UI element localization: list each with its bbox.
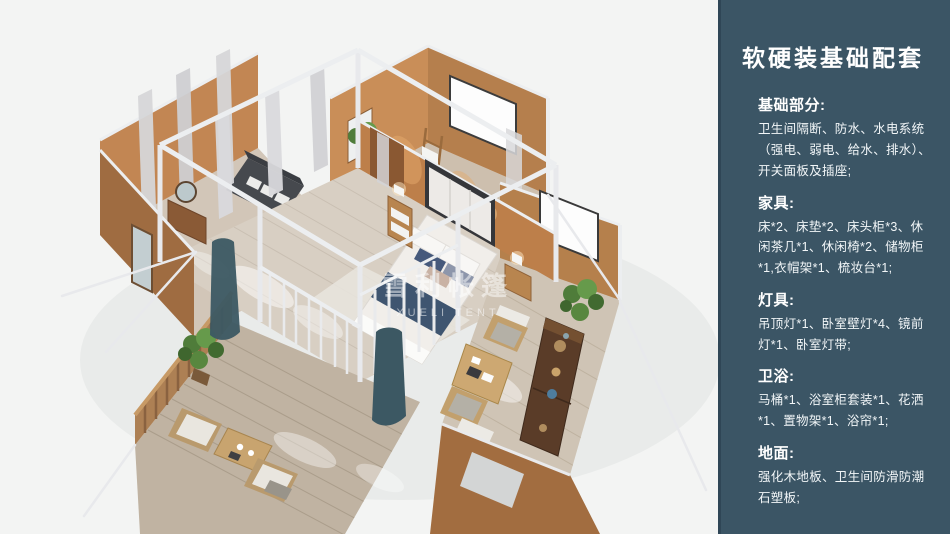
round-mirror <box>176 182 196 202</box>
section-body: 床*2、床垫*2、床头柜*3、休闲茶几*1、休闲椅*2、储物柜*1,衣帽架*1、… <box>758 217 936 279</box>
section-heading: 家具: <box>758 195 936 213</box>
section-heading: 基础部分: <box>758 97 936 115</box>
spec-section-furniture: 家具: 床*2、床垫*2、床头柜*3、休闲茶几*1、休闲椅*2、储物柜*1,衣帽… <box>758 195 936 279</box>
spec-section-lighting: 灯具: 吊顶灯*1、卧室壁灯*4、镜前灯*1、卧室灯带; <box>758 292 936 356</box>
floorplan-3d-view: 雪利帐篷 XUELI TENT <box>0 0 718 534</box>
spec-section-flooring: 地面: 强化木地板、卫生间防滑防潮石塑板; <box>758 445 936 509</box>
slide-canvas: 雪利帐篷 XUELI TENT 软硬装基础配套 基础部分: 卫生间隔断、防水、水… <box>0 0 950 534</box>
spec-section-basics: 基础部分: 卫生间隔断、防水、水电系统（强电、弱电、给水、排水）、开关面板及插座… <box>758 97 936 181</box>
watermark-cn: 雪利帐篷 <box>382 271 514 301</box>
panel-title: 软硬装基础配套 <box>742 46 942 71</box>
leaning-mirror <box>132 225 152 292</box>
section-heading: 地面: <box>758 445 936 463</box>
spec-section-bathroom: 卫浴: 马桶*1、浴室柜套装*1、花洒*1、置物架*1、浴帘*1; <box>758 368 936 432</box>
watermark: 雪利帐篷 XUELI TENT <box>382 271 514 319</box>
spec-sections: 基础部分: 卫生间隔断、防水、水电系统（强电、弱电、给水、排水）、开关面板及插座… <box>758 97 936 508</box>
section-body: 马桶*1、浴室柜套装*1、花洒*1、置物架*1、浴帘*1; <box>758 390 936 432</box>
teal-curtain <box>372 328 406 426</box>
section-body: 卫生间隔断、防水、水电系统（强电、弱电、给水、排水）、开关面板及插座; <box>758 119 936 181</box>
floorplan-render: 雪利帐篷 XUELI TENT <box>0 0 718 534</box>
section-body: 强化木地板、卫生间防滑防潮石塑板; <box>758 467 936 509</box>
spec-panel: 软硬装基础配套 基础部分: 卫生间隔断、防水、水电系统（强电、弱电、给水、排水）… <box>718 0 950 534</box>
watermark-en: XUELI TENT <box>396 307 499 319</box>
section-body: 吊顶灯*1、卧室壁灯*4、镜前灯*1、卧室灯带; <box>758 314 936 356</box>
section-heading: 灯具: <box>758 292 936 310</box>
section-heading: 卫浴: <box>758 368 936 386</box>
